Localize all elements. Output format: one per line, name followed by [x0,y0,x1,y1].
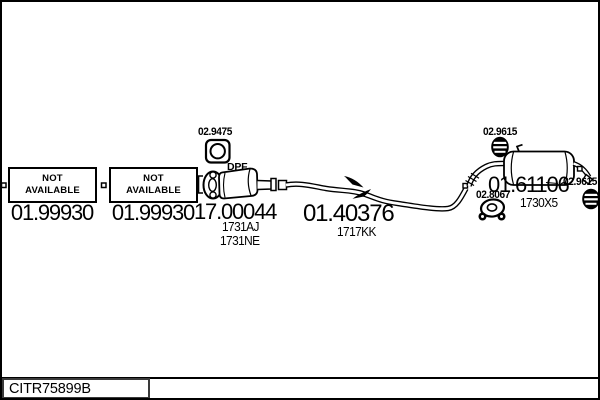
flange-gasket-icon [479,198,506,221]
not-available-label: NOT AVAILABLE [25,173,80,198]
flow-arrow-icon [344,176,364,188]
not-available-box-1: NOT AVAILABLE [8,167,97,203]
part-number-hanger-right[interactable]: 02.9615 [563,176,597,188]
part-number-front-gasket[interactable]: 02.9475 [198,126,232,138]
part-number-front-left[interactable]: 01.99930 [4,200,100,226]
part-number-mid-pipe[interactable]: 01.40376 [303,200,394,228]
rubber-hanger-icon-top [492,138,508,157]
dpf-drawing [199,169,287,199]
variant-code-dpf-1: 1731AJ [222,220,259,234]
part-number-rear-gasket[interactable]: 02.8067 [476,189,510,201]
dpf-tag: DPF [227,161,247,173]
catalog-code: CITR75899B [9,381,91,397]
exhaust-parts-diagram: NOT AVAILABLE NOT AVAILABLE 01.99930 01.… [0,0,600,400]
square-gasket-icon [206,140,230,163]
variant-code-dpf-2: 1731NE [220,234,259,248]
joint-square-icon [102,183,107,188]
part-number-hanger-top[interactable]: 02.9615 [483,126,517,138]
rubber-hanger-icon-right [583,190,599,209]
joint-square-icon [578,167,583,172]
catalog-code-box: CITR75899B [2,378,150,399]
joint-square-icon [2,183,7,188]
variant-code-rear-muffler: 1730X5 [520,196,558,210]
not-available-label: NOT AVAILABLE [126,173,181,198]
not-available-box-2: NOT AVAILABLE [109,167,198,203]
part-number-front-right[interactable]: 01.99930 [105,200,201,226]
variant-code-mid-pipe: 1717KK [337,225,376,239]
